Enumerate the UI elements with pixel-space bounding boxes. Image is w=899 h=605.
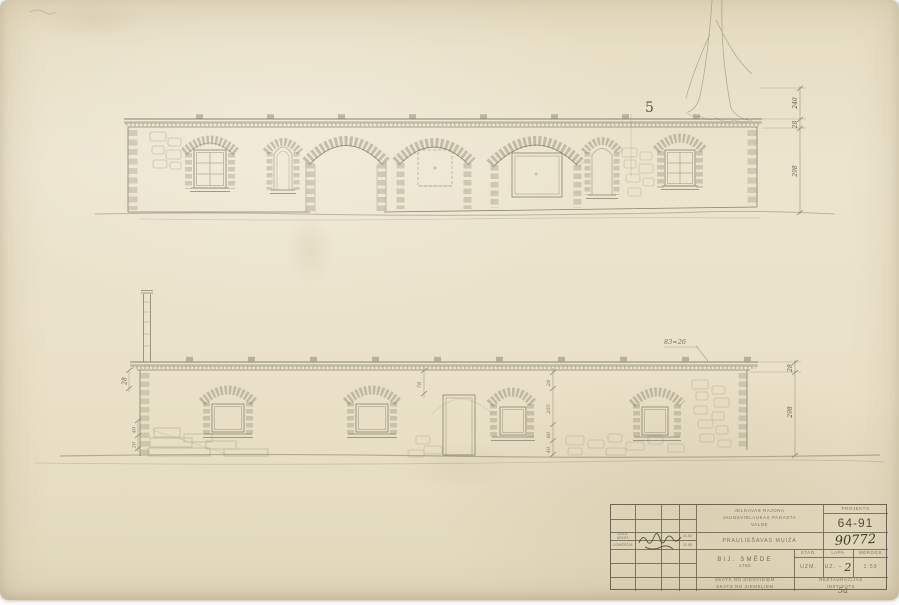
- grid-line: [611, 519, 696, 520]
- arch-with-window: [490, 141, 582, 208]
- dim-label: 298: [792, 165, 799, 178]
- dim-label: 40: [132, 426, 138, 434]
- cornice: [130, 359, 758, 370]
- wall-outline: [140, 370, 747, 456]
- building-year: 1790: [739, 563, 751, 570]
- object-name: PRAULIEŠAVAS MUIŽA: [722, 538, 796, 544]
- sheet-label-cell: LAPA: [823, 549, 853, 557]
- sheet-number: 2: [844, 561, 851, 574]
- arched-window: [632, 392, 682, 441]
- dim-label: 298: [787, 406, 794, 419]
- stage-value-cell: UZM.: [794, 557, 823, 577]
- signature-date-label: 11.92: [683, 534, 692, 538]
- dim-label: 20: [132, 441, 138, 449]
- signature-date: 11.92: [679, 532, 696, 540]
- open-archway: [306, 141, 386, 212]
- sheet-number-cell: UZ. – 2: [823, 557, 853, 577]
- project-number-cell: 64-91: [823, 513, 888, 532]
- view-name: SKATS NO DIENVIDIEM: [715, 577, 775, 584]
- stone-patch: [692, 380, 731, 447]
- scale-value-cell: 1:50: [853, 557, 888, 577]
- dim-label: 78: [417, 382, 423, 388]
- arched-window: [346, 390, 398, 438]
- handwritten-number: 5: [645, 100, 654, 116]
- arched-window: [584, 141, 620, 199]
- scale-value: 1:50: [863, 564, 877, 570]
- arched-window: [184, 140, 236, 192]
- dim-label: 28: [546, 380, 552, 387]
- north-elevation: [35, 291, 885, 465]
- sheet-corner-mark: 5a: [838, 586, 848, 595]
- arch-with-window: [396, 143, 472, 209]
- arched-window: [266, 142, 300, 194]
- ground-line: [95, 211, 835, 220]
- dimension-line: [760, 86, 806, 215]
- org-name: RESTAURĀCIJAS: [819, 577, 863, 584]
- stage-value: UZM.: [800, 564, 817, 570]
- title-block: JELGAVAS RAJONA JAUNSVIRLAUKAS PAGASTA V…: [610, 504, 887, 590]
- arched-window: [202, 390, 254, 438]
- dim-label: 28: [787, 364, 794, 373]
- dim-label: 40: [546, 446, 552, 454]
- dim-label: 240: [792, 97, 799, 110]
- dim-label: 28: [122, 377, 129, 386]
- tree-sketch: [686, 0, 752, 122]
- dim-label: 28: [792, 121, 799, 130]
- dim-label: 60: [546, 431, 552, 438]
- archive-number: 90772: [834, 532, 876, 549]
- archive-number-cell: 90772: [823, 530, 889, 550]
- sheet-label: LAPA: [831, 550, 844, 557]
- scale-label-cell: MĒROGS: [853, 549, 888, 557]
- project-label-cell: PROJEKTS: [823, 505, 888, 513]
- signature-role: GALV. ARHIT.: [611, 532, 635, 540]
- authority-line: JELGAVAS RAJONA: [734, 508, 784, 515]
- signature-scribble: [635, 529, 681, 551]
- dim-label: 205: [546, 404, 552, 415]
- chimney: [141, 291, 153, 363]
- building-name-cell: BIJ. SMĒDE 1790: [696, 549, 794, 577]
- scale-label: MĒROGS: [859, 550, 882, 557]
- authority-cell: JELGAVAS RAJONA JAUNSVIRLAUKAS PAGASTA V…: [696, 505, 823, 532]
- stage-label-cell: STAD.: [794, 549, 823, 557]
- sheet-prefix: UZ. –: [825, 564, 843, 570]
- signature-role-label: GALV. ARHIT.: [611, 532, 635, 540]
- object-name-cell: PRAULIEŠAVAS MUIŽA: [696, 532, 823, 549]
- stage-label: STAD.: [801, 550, 817, 557]
- arched-window: [490, 392, 535, 441]
- signature-role-label: UZMĒRĪJA: [613, 543, 633, 547]
- project-number: 64-91: [838, 516, 874, 530]
- authority-line: VALDE: [751, 522, 768, 529]
- corner-scribble: [30, 10, 56, 14]
- view-name: SKATS NO ZIEMEĻIEM: [716, 584, 774, 591]
- cornice: [124, 117, 762, 128]
- signature-role: UZMĒRĪJA: [611, 540, 635, 549]
- signature-date: 11.92: [679, 540, 696, 549]
- south-elevation: [95, 86, 835, 220]
- stone-patch: [150, 132, 181, 169]
- grid-line: [611, 563, 696, 564]
- view-names-cell: SKATS NO DIENVIDIEM SKATS NO ZIEMEĻIEM: [696, 577, 794, 591]
- arched-window: [656, 138, 704, 190]
- project-label: PROJEKTS: [842, 506, 870, 513]
- authority-line: JAUNSVIRLAUKAS PAGASTA: [723, 515, 797, 522]
- annotation-label: 83=26: [664, 338, 686, 346]
- stone-patch: [622, 148, 654, 196]
- signature-date-label: 11.92: [683, 543, 692, 547]
